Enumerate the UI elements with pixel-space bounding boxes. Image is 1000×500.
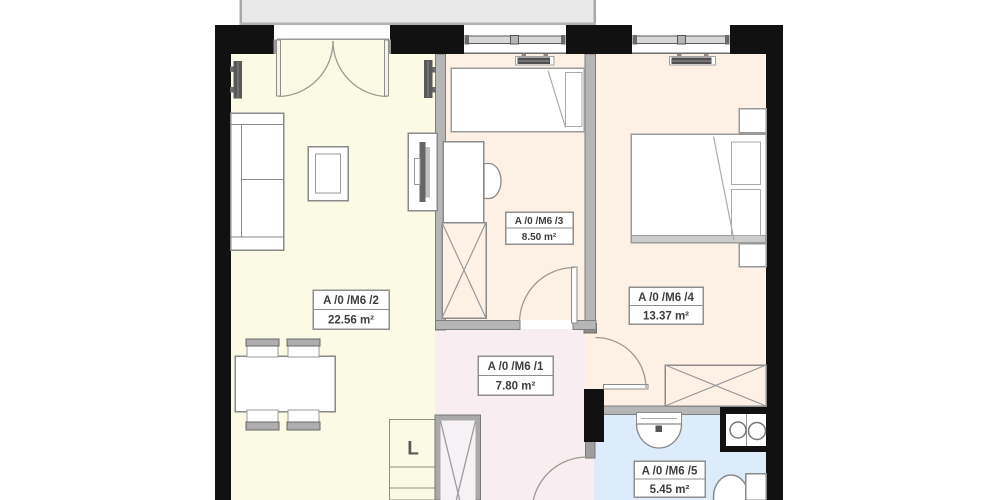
svg-text:A /0 /M6 /3: A /0 /M6 /3 xyxy=(515,216,564,227)
svg-text:A /0 /M6 /5: A /0 /M6 /5 xyxy=(642,466,698,478)
svg-text:13.37 m²: 13.37 m² xyxy=(643,311,689,323)
svg-text:A /0 /M6 /1: A /0 /M6 /1 xyxy=(488,361,544,373)
svg-text:5.45 m²: 5.45 m² xyxy=(650,484,690,496)
svg-text:7.80 m²: 7.80 m² xyxy=(496,381,536,393)
svg-text:A /0 /M6 /2: A /0 /M6 /2 xyxy=(323,295,379,307)
svg-text:A /0 /M6 /4: A /0 /M6 /4 xyxy=(638,292,694,304)
svg-text:L: L xyxy=(407,439,419,460)
svg-text:22.56 m²: 22.56 m² xyxy=(328,315,374,327)
svg-text:8.50 m²: 8.50 m² xyxy=(522,232,557,243)
